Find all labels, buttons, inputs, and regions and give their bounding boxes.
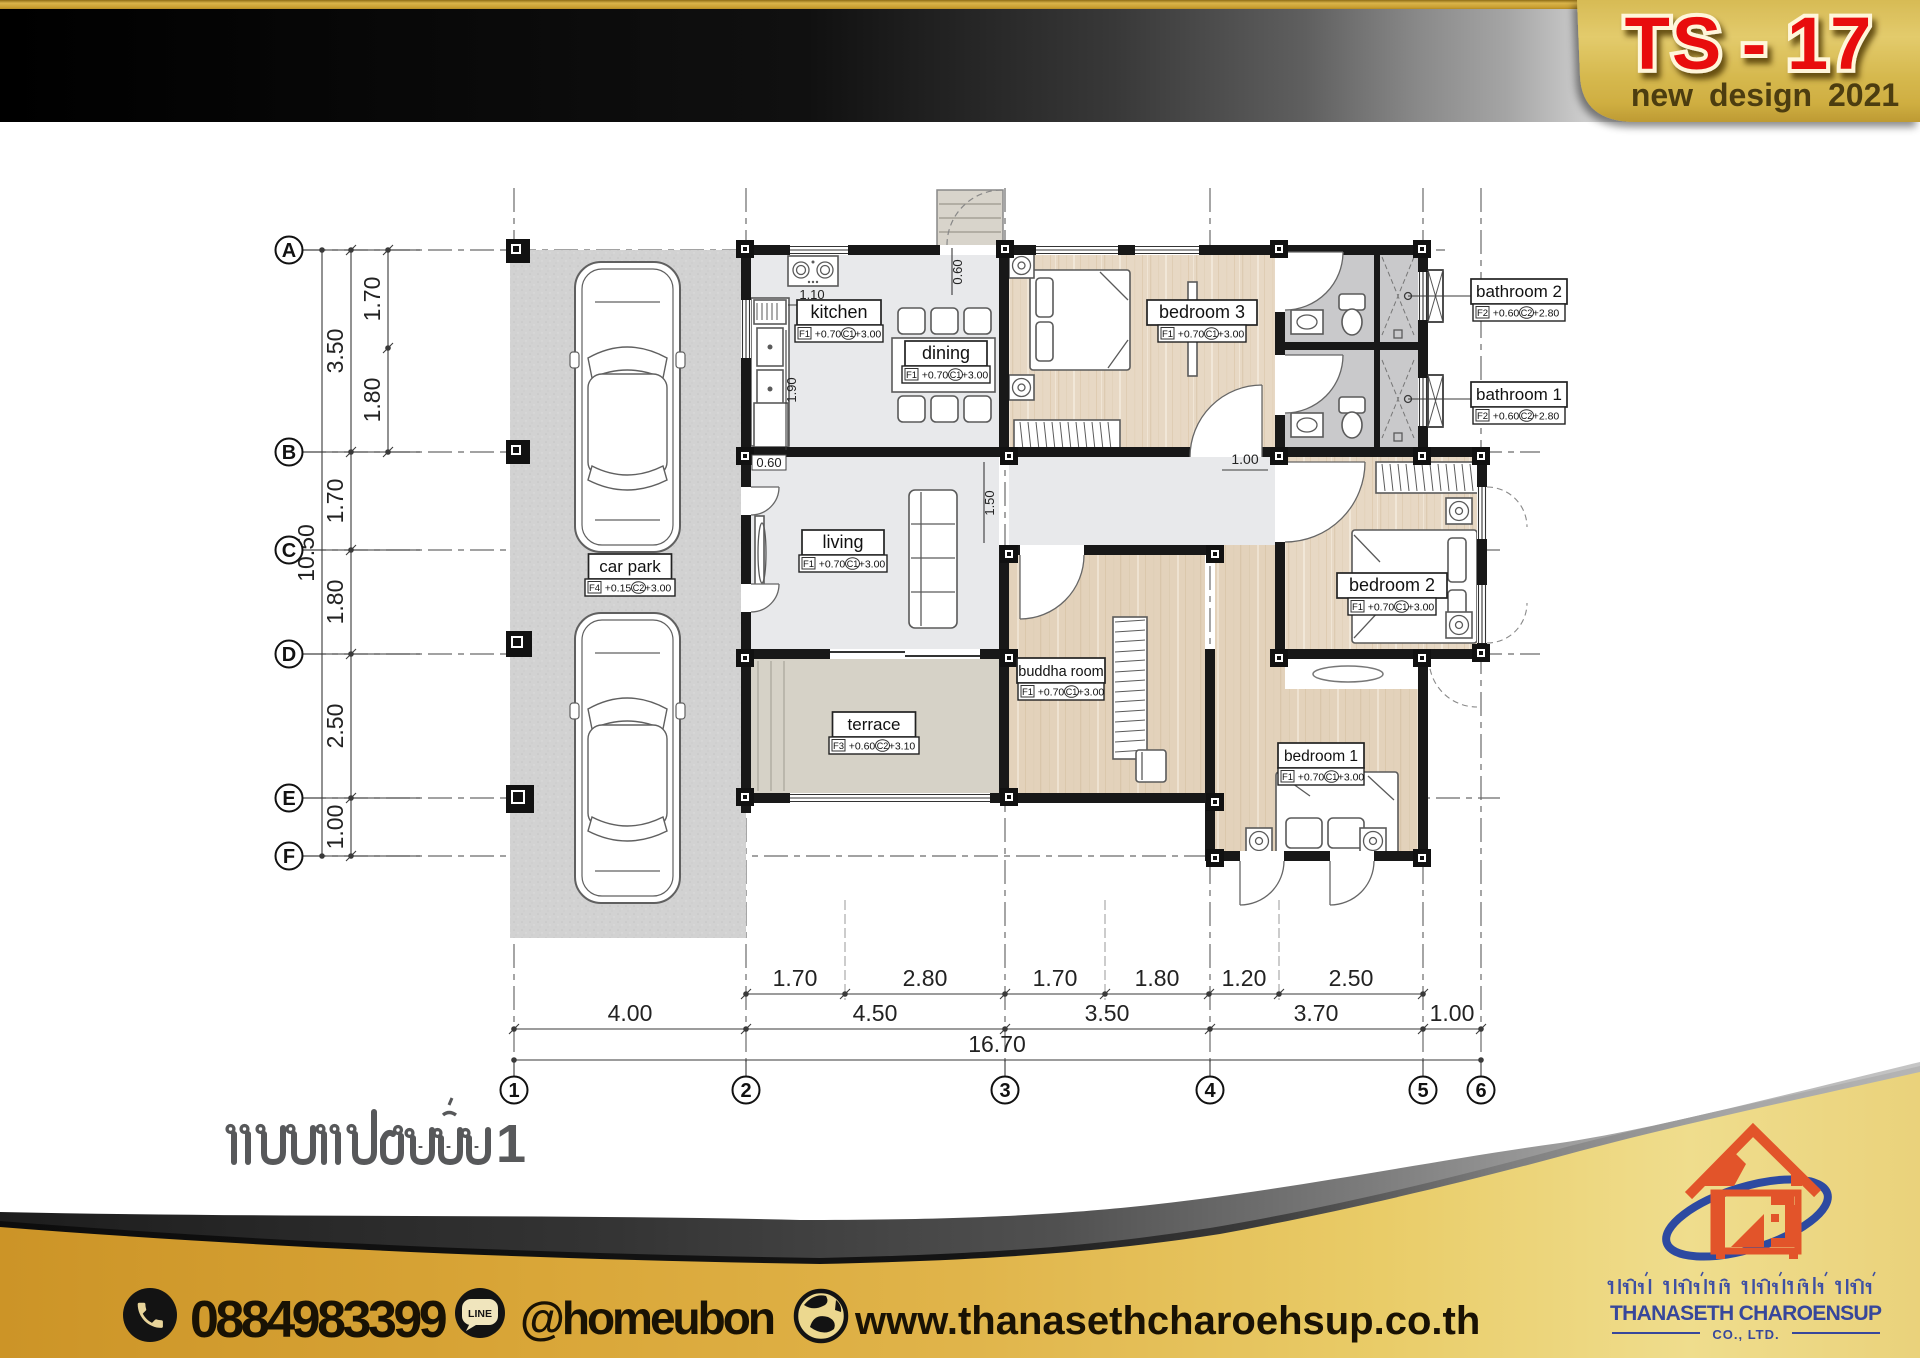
svg-text:www.thanasethcharoehsup.co.th: www.thanasethcharoehsup.co.th	[854, 1299, 1480, 1343]
svg-text:C1: C1	[1326, 772, 1338, 782]
svg-text:A: A	[282, 240, 296, 262]
svg-text:1.00: 1.00	[1430, 1000, 1475, 1026]
svg-text:1.70: 1.70	[359, 277, 385, 322]
svg-text:4: 4	[1204, 1080, 1216, 1102]
svg-text:@homeubon: @homeubon	[520, 1292, 774, 1344]
svg-text:+0.70: +0.70	[1178, 329, 1205, 341]
svg-text:dining: dining	[922, 343, 970, 363]
svg-text:1.20: 1.20	[1222, 965, 1267, 991]
svg-text:C2: C2	[877, 741, 889, 751]
svg-text:C1: C1	[950, 370, 962, 380]
svg-text:+3.10: +3.10	[889, 741, 916, 753]
svg-text:2.80: 2.80	[903, 965, 948, 991]
svg-text:F: F	[283, 846, 295, 868]
svg-text:+0.70: +0.70	[819, 559, 846, 571]
svg-text:F2: F2	[1477, 308, 1488, 319]
svg-text:F1: F1	[1282, 772, 1293, 783]
svg-text:1.80: 1.80	[322, 580, 348, 625]
svg-text:+3.00: +3.00	[962, 370, 989, 382]
svg-text:1.70: 1.70	[773, 965, 818, 991]
svg-text:0884983399: 0884983399	[190, 1291, 446, 1349]
svg-text:bedroom 3: bedroom 3	[1159, 302, 1245, 322]
svg-text:+2.80: +2.80	[1533, 308, 1560, 320]
svg-text:F1: F1	[906, 370, 917, 381]
svg-text:6: 6	[1475, 1080, 1486, 1102]
svg-text:C2: C2	[1521, 411, 1533, 421]
svg-text:+0.70: +0.70	[1368, 602, 1395, 614]
svg-text:C1: C1	[843, 329, 855, 339]
svg-text:+0.60: +0.60	[1493, 411, 1520, 423]
svg-text:CO., LTD.: CO., LTD.	[1712, 1327, 1779, 1342]
svg-text:+0.60: +0.60	[1493, 308, 1520, 320]
svg-text:4.00: 4.00	[608, 1000, 653, 1026]
svg-text:4.50: 4.50	[853, 1000, 898, 1026]
svg-text:3.50: 3.50	[322, 329, 348, 374]
svg-text:kitchen: kitchen	[810, 302, 867, 322]
svg-text:C1: C1	[847, 559, 859, 569]
svg-text:living: living	[822, 532, 863, 552]
svg-text:buddha room: buddha room	[1018, 664, 1103, 680]
svg-text:+0.15: +0.15	[605, 583, 632, 595]
svg-text:F1: F1	[1162, 329, 1173, 340]
svg-text:C: C	[282, 540, 296, 562]
svg-text:1.70: 1.70	[1033, 965, 1078, 991]
svg-text:F1: F1	[1022, 687, 1033, 698]
svg-text:16.70: 16.70	[968, 1031, 1026, 1057]
svg-text:1.90: 1.90	[784, 377, 799, 402]
svg-text:LINE: LINE	[468, 1308, 492, 1320]
svg-text:2: 2	[740, 1080, 751, 1102]
svg-text:+3.00: +3.00	[1338, 772, 1365, 784]
svg-text:F1: F1	[803, 559, 814, 570]
svg-text:F1: F1	[799, 329, 810, 340]
svg-text:+0.60: +0.60	[849, 741, 876, 753]
svg-text:+3.00: +3.00	[1408, 602, 1435, 614]
svg-text:3.70: 3.70	[1294, 1000, 1339, 1026]
svg-text:+3.00: +3.00	[1078, 687, 1105, 699]
svg-text:terrace: terrace	[848, 715, 901, 734]
svg-text:1.00: 1.00	[1231, 451, 1258, 467]
svg-text:bedroom 1: bedroom 1	[1284, 748, 1358, 765]
svg-text:C1: C1	[1206, 329, 1218, 339]
svg-text:+0.70: +0.70	[1038, 687, 1065, 699]
svg-text:+3.00: +3.00	[645, 583, 672, 595]
svg-text:2.50: 2.50	[322, 704, 348, 749]
svg-text:new design 2021: new design 2021	[1631, 77, 1899, 113]
svg-text:1.70: 1.70	[322, 479, 348, 524]
svg-text:D: D	[282, 644, 296, 666]
svg-text:3: 3	[999, 1080, 1010, 1102]
svg-text:1.00: 1.00	[322, 805, 348, 850]
svg-text:bathroom 2: bathroom 2	[1476, 282, 1562, 301]
svg-text:C1: C1	[1396, 602, 1408, 612]
svg-text:F1: F1	[1352, 602, 1363, 613]
svg-text:1: 1	[496, 1114, 526, 1174]
svg-text:C2: C2	[1521, 308, 1533, 318]
svg-text:TS - 17: TS - 17	[1625, 2, 1874, 85]
svg-text:THANASETH CHAROENSUP: THANASETH CHAROENSUP	[1610, 1302, 1882, 1325]
svg-text:F4: F4	[589, 583, 600, 594]
svg-text:0.60: 0.60	[950, 259, 965, 284]
svg-text:1.80: 1.80	[359, 378, 385, 423]
svg-text:3.50: 3.50	[1085, 1000, 1130, 1026]
svg-text:B: B	[282, 442, 296, 464]
svg-text:0.60: 0.60	[756, 455, 781, 470]
svg-text:bedroom 2: bedroom 2	[1349, 575, 1435, 595]
svg-text:+0.70: +0.70	[1298, 772, 1325, 784]
svg-text:F3: F3	[833, 741, 844, 752]
svg-text:1.50: 1.50	[982, 490, 997, 515]
svg-text:+2.80: +2.80	[1533, 411, 1560, 423]
svg-text:E: E	[282, 788, 295, 810]
svg-text:2.50: 2.50	[1329, 965, 1374, 991]
svg-text:C1: C1	[1066, 687, 1078, 697]
svg-text:1.80: 1.80	[1135, 965, 1180, 991]
svg-text:C2: C2	[633, 583, 645, 593]
svg-text:car park: car park	[599, 557, 661, 576]
svg-text:+3.00: +3.00	[1218, 329, 1245, 341]
svg-text:bathroom 1: bathroom 1	[1476, 385, 1562, 404]
svg-text:+0.70: +0.70	[922, 370, 949, 382]
svg-text:F2: F2	[1477, 411, 1488, 422]
svg-text:+0.70: +0.70	[815, 329, 842, 341]
svg-text:+3.00: +3.00	[855, 329, 882, 341]
svg-text:5: 5	[1417, 1080, 1428, 1102]
svg-text:1: 1	[508, 1080, 519, 1102]
svg-text:+3.00: +3.00	[859, 559, 886, 571]
